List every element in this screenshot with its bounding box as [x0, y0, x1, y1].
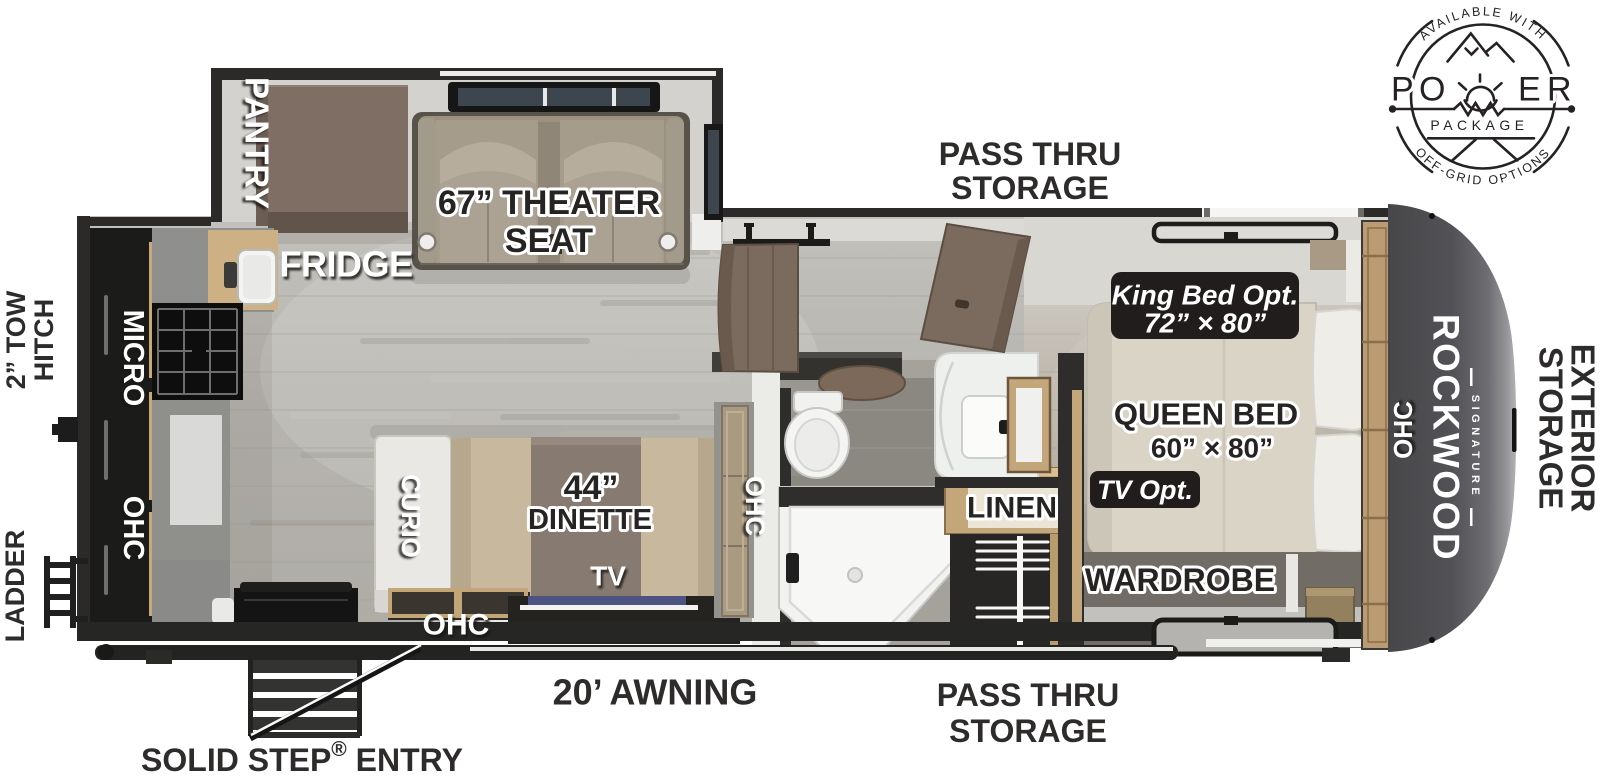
svg-text:44”: 44”	[564, 469, 619, 507]
svg-text:E: E	[1518, 71, 1541, 109]
svg-text:DINETTE: DINETTE	[528, 504, 652, 536]
svg-text:OHC: OHC	[1388, 401, 1418, 459]
svg-text:STORAGE: STORAGE	[1533, 347, 1570, 510]
svg-text:ROCKWOOD: ROCKWOOD	[1426, 314, 1467, 562]
svg-text:PACKAGE: PACKAGE	[1430, 117, 1528, 133]
svg-text:OHC: OHC	[423, 609, 490, 642]
svg-text:PASS THRU: PASS THRU	[939, 136, 1122, 172]
svg-text:R: R	[1547, 71, 1572, 109]
svg-text:TV: TV	[590, 561, 626, 592]
svg-text:72” × 80”: 72” × 80”	[1144, 308, 1266, 339]
svg-text:LADDER: LADDER	[0, 530, 30, 643]
svg-text:O: O	[1419, 71, 1445, 109]
svg-text:MICRO: MICRO	[117, 310, 149, 407]
svg-text:67” THEATER: 67” THEATER	[438, 184, 660, 222]
svg-text:STORAGE: STORAGE	[951, 170, 1109, 206]
svg-text:STORAGE: STORAGE	[949, 713, 1107, 749]
svg-text:TV Opt.: TV Opt.	[1097, 475, 1193, 505]
svg-text:FRIDGE: FRIDGE	[279, 244, 412, 285]
svg-text:SIGNATURE: SIGNATURE	[1469, 395, 1481, 499]
svg-text:P: P	[1391, 71, 1414, 109]
svg-text:PASS THRU: PASS THRU	[937, 677, 1120, 713]
svg-text:King Bed Opt.: King Bed Opt.	[1112, 280, 1299, 311]
svg-text:QUEEN BED: QUEEN BED	[1114, 397, 1298, 432]
svg-text:WARDROBE: WARDROBE	[1085, 562, 1275, 598]
svg-text:20’ AWNING: 20’ AWNING	[553, 672, 758, 713]
svg-text:60” × 80”: 60” × 80”	[1151, 433, 1273, 464]
svg-text:CURIO: CURIO	[396, 474, 426, 558]
svg-text:SEAT: SEAT	[505, 222, 593, 260]
svg-text:2” TOW: 2” TOW	[1, 290, 31, 389]
svg-text:OHC: OHC	[117, 496, 149, 561]
svg-text:HITCH: HITCH	[29, 299, 59, 382]
svg-text:OHC: OHC	[740, 476, 770, 536]
svg-text:LINEN: LINEN	[967, 492, 1057, 525]
svg-text:PANTRY: PANTRY	[239, 77, 276, 209]
svg-text:SOLID STEP® ENTRY: SOLID STEP® ENTRY	[141, 738, 463, 776]
